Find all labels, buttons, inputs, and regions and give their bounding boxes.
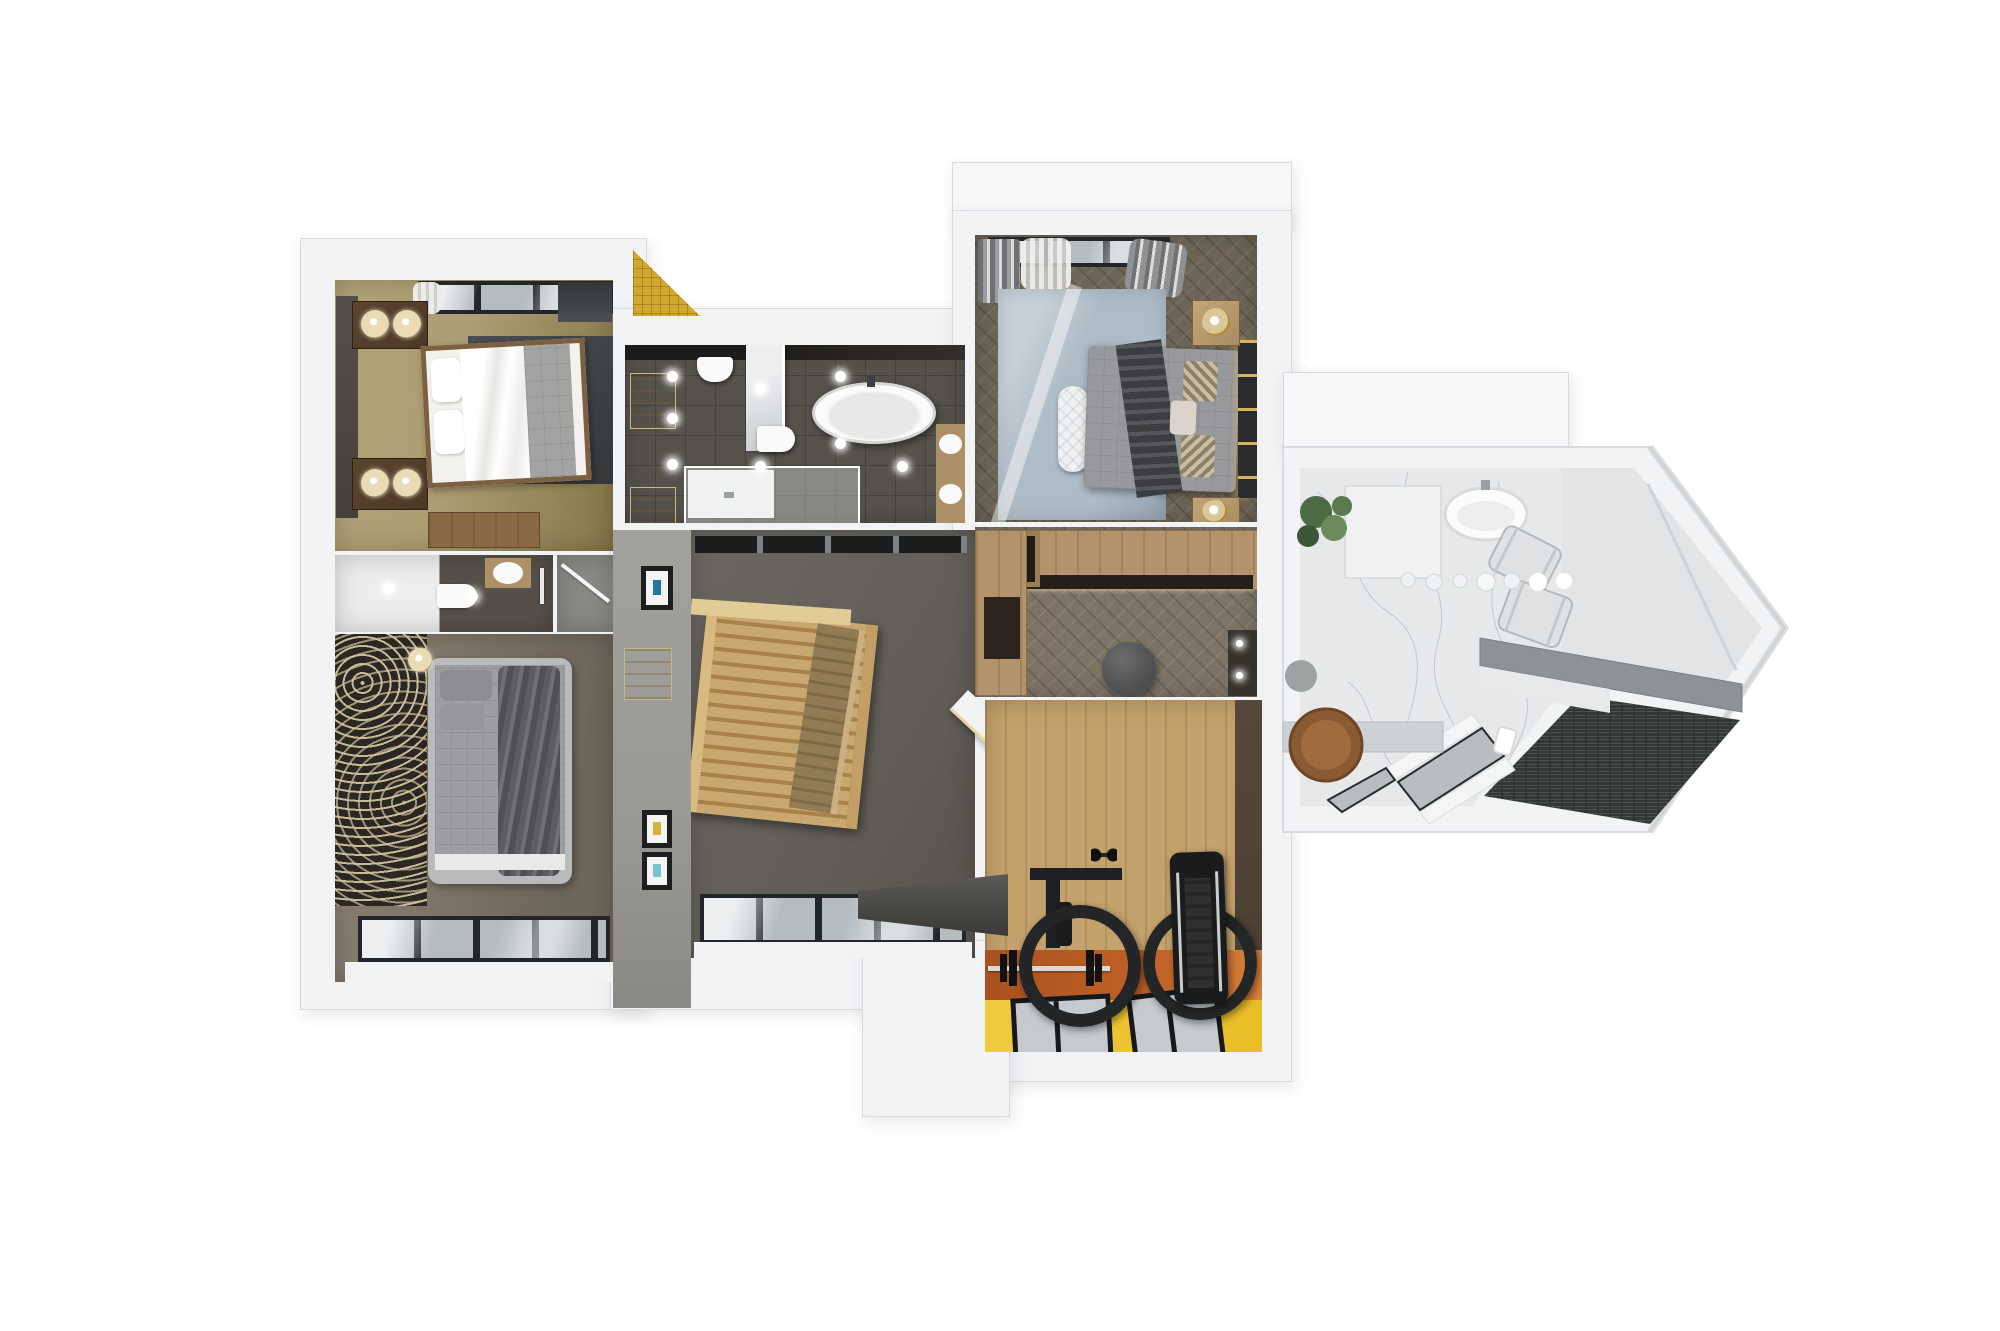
bedroom2-nightstand-top	[352, 301, 428, 349]
master-bed	[1084, 345, 1241, 492]
gallery-wall	[613, 530, 691, 1008]
gallery-frame	[642, 852, 672, 890]
ceiling-spot	[667, 371, 678, 382]
artwork	[653, 580, 662, 595]
vanity-basin	[939, 484, 962, 504]
bathtub-faucet	[867, 375, 875, 387]
master-lamp	[1202, 500, 1228, 522]
wall-hung-toilet	[697, 357, 733, 382]
sphere-stool	[1285, 660, 1317, 692]
bed-sheet-edge	[435, 854, 565, 870]
master-bedroom	[975, 235, 1257, 522]
bed-white-pillow	[1169, 400, 1196, 435]
wardrobe-open-niche	[984, 597, 1020, 659]
dressing-pouf	[1102, 642, 1156, 696]
master-bench-quilted	[1058, 386, 1088, 472]
bed-grey-runner	[524, 344, 577, 478]
artwork	[653, 864, 661, 877]
master-nightstand-bottom	[1192, 497, 1240, 522]
bedroom2	[335, 280, 613, 551]
ceiling-spot	[897, 461, 908, 472]
vanity-light	[1236, 640, 1243, 647]
closet-door	[561, 563, 611, 603]
master-bathroom-wing	[1268, 432, 1798, 844]
bathroom-dark-wall	[625, 345, 965, 360]
vanity-basin	[939, 434, 962, 454]
barbell-plate	[1000, 954, 1007, 982]
treadmill	[1169, 851, 1228, 1005]
floorplan-render	[0, 0, 2000, 1331]
barbell-plate	[1009, 950, 1017, 986]
gallery-frame	[641, 566, 673, 610]
bedroom2-lamp	[393, 469, 421, 497]
bed-pillow	[440, 704, 484, 730]
dressing-vanity	[1228, 630, 1257, 696]
ceiling-spot	[667, 413, 678, 424]
ceiling-spot	[467, 591, 478, 602]
bed-chevron-pillow	[1183, 361, 1218, 402]
vanity-light	[1236, 672, 1243, 679]
bedroom2-lamp	[393, 310, 421, 338]
bedroom2-wardrobe	[558, 282, 612, 322]
bed-pillow	[433, 409, 465, 455]
bed-pillow	[440, 670, 492, 700]
ceiling-spot	[835, 438, 846, 449]
treadmill-rail	[1215, 871, 1222, 991]
bedroom3-window-wall	[358, 916, 610, 962]
master-headboard-backlit	[1238, 340, 1257, 498]
artwork	[653, 822, 661, 835]
ceiling-spot	[383, 583, 394, 594]
ensuite-sink-counter	[485, 558, 531, 588]
bidet	[757, 426, 795, 452]
family-bathroom	[625, 345, 965, 523]
bedroom3-pattern-carpet	[335, 634, 427, 906]
training-wheel	[1019, 905, 1141, 1027]
ceiling-spot	[667, 459, 678, 470]
ensuite-bathroom	[335, 555, 553, 632]
bed-drape-blanket	[498, 666, 560, 876]
bathroom-white-cabinet	[1345, 486, 1441, 578]
gallery-niche	[624, 648, 672, 700]
hall-closet	[557, 555, 613, 632]
master-nightstand-top	[1192, 300, 1240, 346]
bed-duvet-folds	[460, 346, 531, 481]
gallery-frame	[642, 810, 672, 848]
freestanding-bathtub	[812, 382, 936, 444]
bedroom3	[335, 634, 613, 982]
bed-pillow	[430, 357, 462, 403]
timber-tray-inner	[1301, 720, 1351, 770]
shower-drain	[724, 492, 734, 498]
dressing-wardrobe-left	[975, 530, 1027, 696]
home-gym	[985, 700, 1262, 1052]
bedroom2-lamp	[361, 469, 389, 497]
dressing-room	[975, 527, 1257, 697]
bedroom2-four-poster-bed	[420, 338, 591, 488]
bathtub-basin	[1457, 501, 1515, 531]
stair-void-balustrade	[695, 536, 967, 553]
wardrobe-hanging-gap	[1017, 575, 1253, 589]
treadmill-belt	[1184, 878, 1214, 989]
bedroom3-lamp-top	[408, 648, 432, 672]
bedroom2-bench-chest	[428, 512, 540, 548]
power-rack	[1030, 868, 1122, 880]
bathroom-cabinet	[630, 487, 676, 523]
bedroom3-window-sill	[345, 962, 613, 982]
ceiling-spot	[755, 461, 766, 472]
bedroom2-lamp	[361, 310, 389, 338]
ensuite-basin	[493, 562, 523, 584]
ceiling-spot	[835, 371, 846, 382]
gold-mosaic-accent-wall	[633, 250, 700, 316]
bedroom3-bed	[428, 658, 572, 884]
double-vanity	[936, 424, 965, 523]
ensuite-towel-rail	[540, 568, 544, 604]
bathtub-faucet	[1481, 480, 1490, 490]
master-curtain-sheer	[1021, 238, 1071, 290]
bed-chevron-pillow	[1180, 435, 1215, 478]
ceiling-spot	[755, 383, 766, 394]
walk-in-shower	[684, 466, 860, 523]
bedroom2-nightstand-bottom	[352, 458, 428, 510]
dumbbell	[1091, 848, 1117, 862]
master-lamp	[1202, 308, 1230, 336]
treadmill-rail	[1176, 873, 1183, 993]
landing-window-sill	[694, 942, 972, 958]
